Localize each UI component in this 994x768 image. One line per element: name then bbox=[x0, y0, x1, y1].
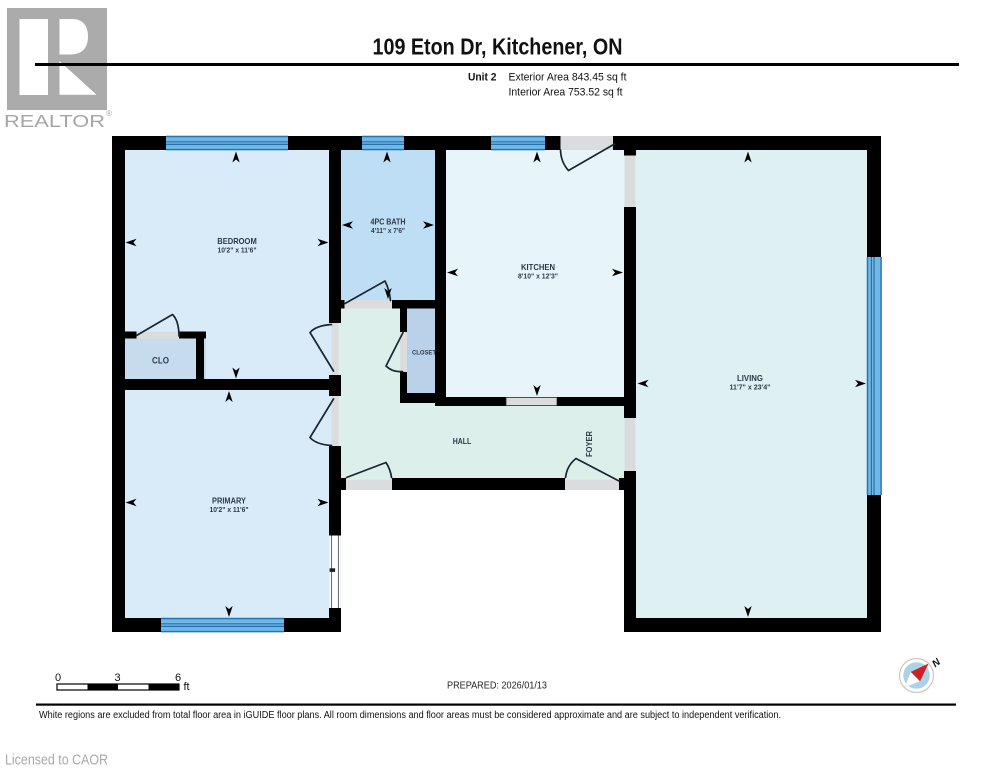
svg-text:4'11" x 7'6": 4'11" x 7'6" bbox=[371, 226, 405, 235]
svg-text:White regions are excluded fro: White regions are excluded from total fl… bbox=[39, 710, 781, 721]
svg-text:11'7" x 23'4": 11'7" x 23'4" bbox=[730, 382, 771, 391]
svg-text:Interior Area 753.52 sq ft: Interior Area 753.52 sq ft bbox=[509, 86, 624, 98]
svg-text:CLOSET: CLOSET bbox=[412, 350, 436, 357]
svg-text:HALL: HALL bbox=[453, 437, 472, 446]
svg-text:6: 6 bbox=[175, 672, 181, 684]
svg-text:109 Eton Dr, Kitchener, ON: 109 Eton Dr, Kitchener, ON bbox=[373, 34, 623, 60]
svg-text:3: 3 bbox=[114, 672, 120, 684]
svg-text:FOYER: FOYER bbox=[585, 431, 594, 457]
svg-text:REALTOR: REALTOR bbox=[4, 111, 105, 131]
svg-text:8'10" x 12'3": 8'10" x 12'3" bbox=[518, 271, 558, 280]
svg-text:Unit 2: Unit 2 bbox=[468, 72, 497, 84]
svg-text:Exterior Area 843.45 sq ft: Exterior Area 843.45 sq ft bbox=[509, 72, 628, 84]
svg-text:0: 0 bbox=[55, 672, 61, 684]
svg-text:10'2" x 11'6": 10'2" x 11'6" bbox=[210, 505, 249, 514]
svg-text:Licensed to CAOR: Licensed to CAOR bbox=[5, 753, 108, 768]
svg-text:PREPARED: 2026/01/13: PREPARED: 2026/01/13 bbox=[447, 681, 547, 692]
svg-text:ft: ft bbox=[184, 681, 190, 693]
svg-text:10'2" x 11'6": 10'2" x 11'6" bbox=[218, 245, 257, 254]
svg-text:CLO: CLO bbox=[152, 356, 169, 366]
svg-text:®: ® bbox=[106, 109, 112, 118]
